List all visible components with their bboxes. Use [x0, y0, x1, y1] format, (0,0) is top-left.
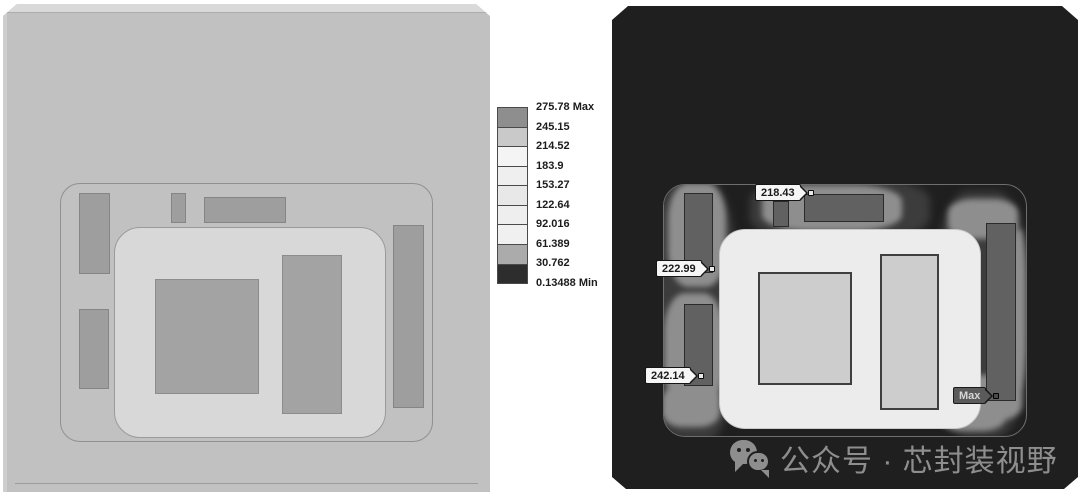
probe-value: Max [959, 390, 980, 402]
probe-value: 218.43 [761, 187, 795, 199]
legend-band [498, 225, 527, 245]
probe-value: 242.14 [651, 370, 685, 382]
probe-label-max[interactable]: Max [953, 387, 986, 404]
geometry-view-panel [3, 4, 490, 492]
legend-band [498, 167, 527, 187]
substrate-outline [60, 183, 433, 442]
panel-left-bevel [3, 13, 7, 499]
probe-label-242[interactable]: 242.14 [645, 367, 691, 384]
die-tall-thermal [880, 254, 939, 410]
legend-band [498, 128, 527, 148]
legend-band [498, 206, 527, 226]
thermal-view-panel: 218.43 222.99 242.14 Max 公众号 · 芯封装视野 [612, 6, 1078, 489]
legend-band [498, 245, 527, 265]
legend-band [498, 186, 527, 206]
wechat-bubble-small-tail [761, 470, 769, 478]
watermark: 公众号 · 芯封装视野 [730, 436, 1058, 480]
component-top-small-thermal [773, 201, 789, 227]
package-mold-thermal [719, 229, 981, 429]
component-left-bottom [79, 309, 109, 389]
wechat-bubble-large-tail [735, 462, 745, 472]
component-top-small [171, 193, 186, 223]
legend-color-bar [497, 107, 528, 284]
die-square [155, 279, 259, 394]
heat-contour-hot [663, 385, 720, 427]
wechat-bubble-small [747, 451, 770, 472]
legend-band [498, 265, 527, 284]
component-left-top [79, 193, 110, 274]
probe-label-218[interactable]: 218.43 [755, 184, 801, 201]
die-square-thermal [758, 272, 852, 385]
component-right-tall-thermal [986, 223, 1016, 401]
watermark-text: 公众号 · 芯封装视野 [780, 436, 1058, 480]
probe-anchor-dot [808, 190, 814, 196]
probe-anchor-dot [698, 373, 704, 379]
component-right-tall [393, 225, 424, 408]
wechat-icon [730, 437, 772, 479]
probe-anchor-dot [993, 393, 999, 399]
panel-top-bevel [3, 4, 490, 13]
component-top-wide-thermal [804, 194, 884, 222]
package-mold [114, 227, 386, 438]
probe-anchor-dot [709, 266, 715, 272]
component-top-wide [204, 197, 286, 223]
legend-band [498, 108, 527, 128]
probe-value: 222.99 [662, 263, 696, 275]
legend-band [498, 147, 527, 167]
probe-label-222[interactable]: 222.99 [656, 260, 702, 277]
panel-base-edge-line [15, 483, 478, 484]
die-tall [282, 255, 342, 414]
screenshot-stage: 275.78 Max 245.15 214.52 183.9 153.27 12… [0, 0, 1080, 499]
